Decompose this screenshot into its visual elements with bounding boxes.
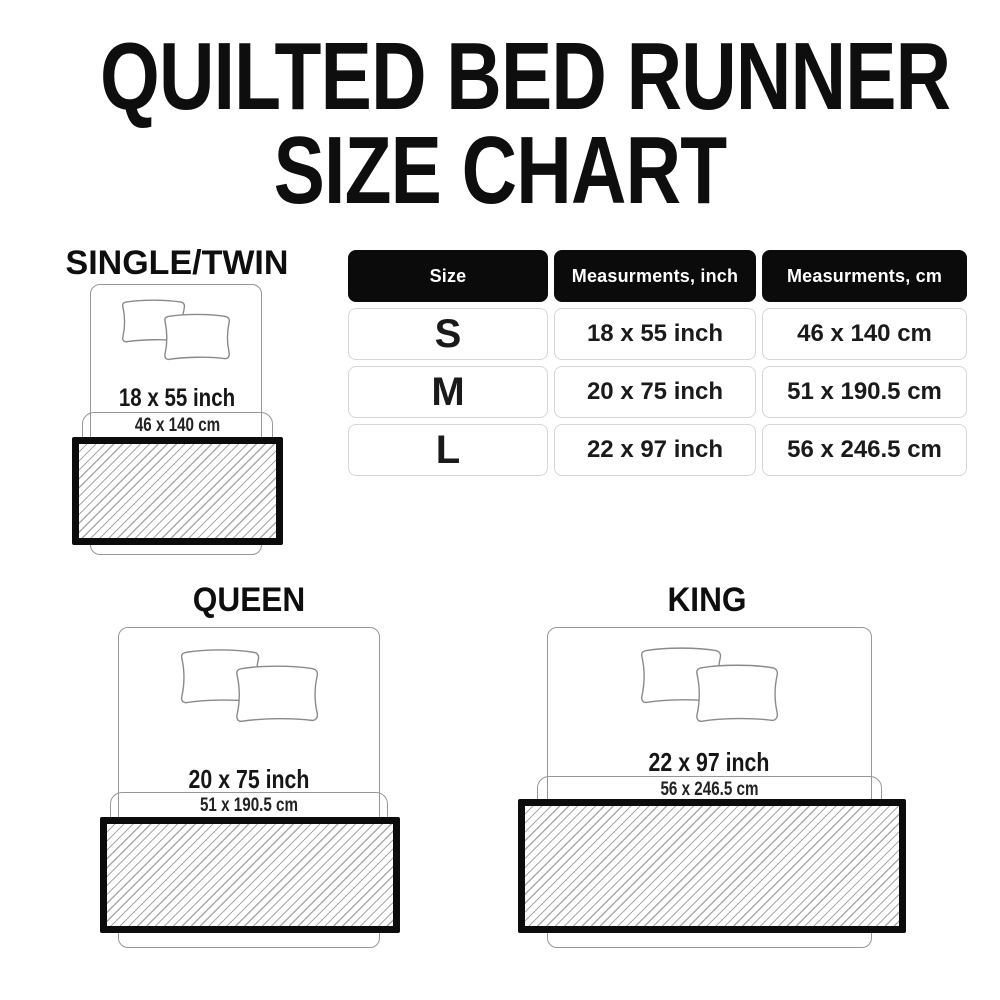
title-line-2: SIZE CHART [100,124,900,218]
row-m-size-cell: M [348,366,548,418]
inch-dimension-label: 22 x 97 inch [619,747,799,778]
row-m-cm-cell: 51 x 190.5 cm [762,366,967,418]
bed-runner-swatch [518,799,906,933]
pillow-front-icon [161,311,233,364]
bed-runner-swatch [72,437,283,545]
row-l-inch-cell: 22 x 97 inch [554,424,756,476]
cm-dimension-label: 56 x 246.5 cm [572,779,846,801]
size-chart-infographic: QUILTED BED RUNNER SIZE CHART Size Measu… [0,0,1000,1000]
diagram-title: KING [568,581,847,620]
diagram-title: SINGLE/TWIN [27,244,327,283]
row-s-size-cell: S [348,308,548,360]
inch-dimension-label: 20 x 75 inch [159,764,339,795]
bed-runner-swatch [100,817,400,933]
header-size: Size [348,250,548,302]
row-s-inch-cell: 18 x 55 inch [554,308,756,360]
pillow-front-icon [692,661,782,727]
inch-dimension-label: 18 x 55 inch [87,384,267,413]
page-title: QUILTED BED RUNNER SIZE CHART [0,30,1000,218]
size-table: Size Measurments, inch Measurments, cm S… [348,250,968,476]
row-l-size-cell: L [348,424,548,476]
title-line-1: QUILTED BED RUNNER [100,30,900,124]
row-l-cm-cell: 56 x 246.5 cm [762,424,967,476]
cm-dimension-label: 51 x 190.5 cm [139,795,360,817]
diagram-title: QUEEN [110,581,389,620]
pillow-front-icon [232,662,322,727]
header-measurements-cm: Measurments, cm [762,250,967,302]
row-s-cm-cell: 46 x 140 cm [762,308,967,360]
row-m-inch-cell: 20 x 75 inch [554,366,756,418]
cm-dimension-label: 46 x 140 cm [102,415,253,437]
header-measurements-inch: Measurments, inch [554,250,756,302]
